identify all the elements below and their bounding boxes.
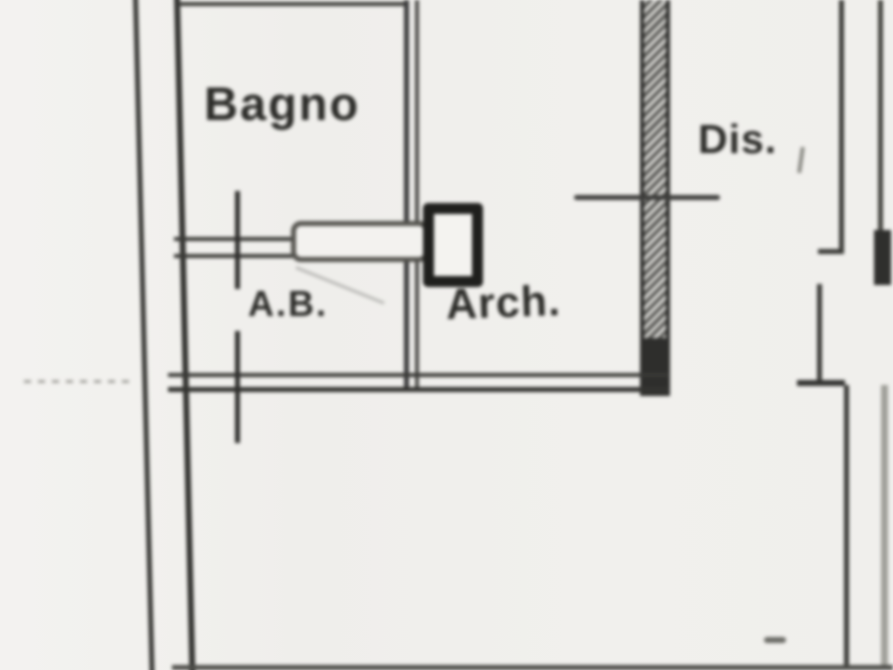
room-label-disimpegno: Dis. [698, 116, 777, 163]
wall-divider-right-line [415, 0, 419, 391]
small-dash-mark [764, 637, 786, 643]
door-leaf [291, 221, 429, 262]
wall-left-outer [133, 0, 155, 670]
wall-right-outer-jamb [874, 230, 891, 285]
wall-right-window-step [818, 249, 844, 254]
wall-right-inner-bottom [844, 385, 849, 670]
dashed-reference-line [24, 380, 130, 383]
wall-right-outer-top [878, 0, 883, 232]
plan-drawing-layer: Bagno A.B. Arch. Dis. [0, 0, 893, 670]
opening-tick-lower [235, 331, 240, 443]
wall-right-outer-faint [881, 385, 888, 670]
room-label-antibagno: A.B. [248, 283, 328, 325]
wall-bagno-top [178, 2, 408, 6]
wall-right-window-recess [817, 284, 822, 384]
floor-plan-scan: Bagno A.B. Arch. Dis. [0, 0, 893, 670]
wall-divider-left-line [404, 0, 409, 391]
opening-tick-upper [235, 191, 240, 289]
bottom-edge-strip [172, 665, 893, 670]
room-label-arch: Arch. [445, 277, 562, 330]
room-label-bagno: Bagno [204, 76, 360, 131]
small-tick-right [797, 147, 805, 173]
wall-ab-bottom-upper-line [168, 373, 668, 377]
wall-left-inner [174, 0, 195, 670]
wall-right-inner-top [839, 0, 844, 253]
opening-tick-dis-door [574, 195, 720, 200]
wall-right-window-sill [797, 380, 845, 386]
door-frame-block [423, 203, 483, 287]
wall-ab-bottom-lower-line [168, 387, 668, 392]
